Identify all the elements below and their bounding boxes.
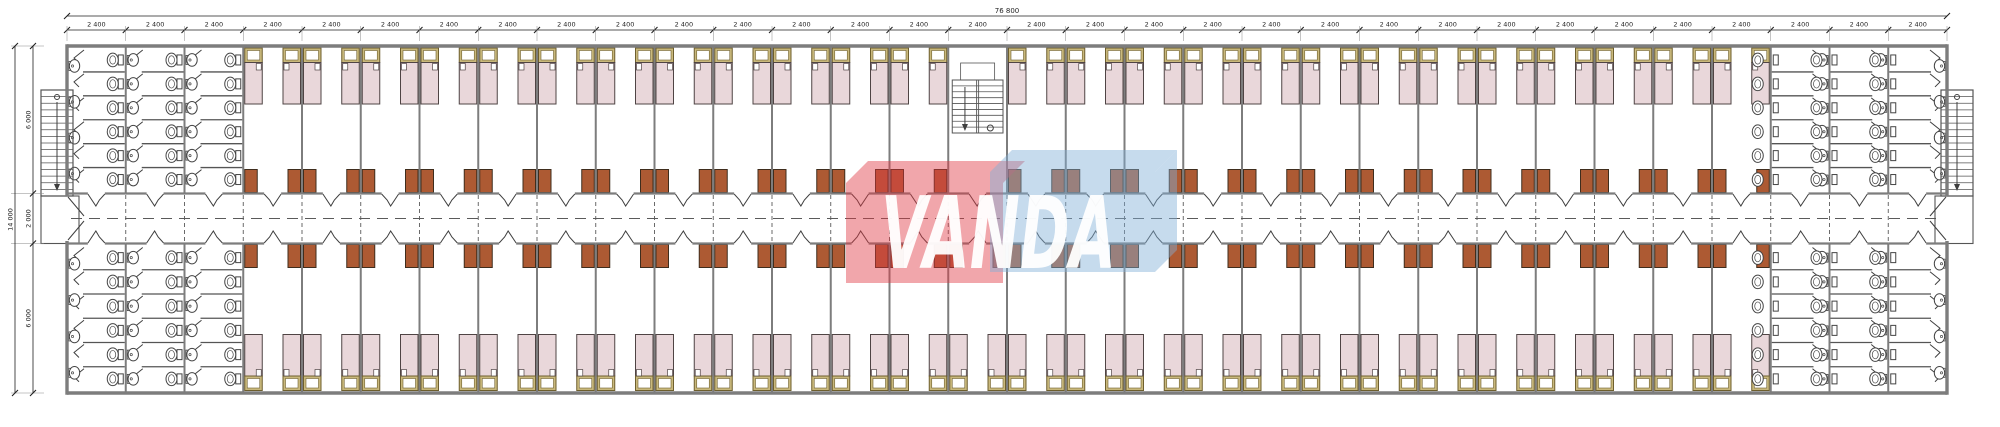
module-dim-label: 2 400 [1086,21,1105,29]
toilet-icon [166,372,182,386]
bed-icon [518,335,536,391]
bed-icon [362,335,380,391]
toilet-icon [166,348,182,362]
bed-icon [1479,335,1497,391]
module-dim-label: 2 400 [1438,21,1457,29]
toilet-icon [225,173,241,187]
module-dim-label: 2 400 [557,21,576,29]
bedroom-bottom-5 [304,231,360,391]
sink-icon [1934,330,1945,343]
door-swing [440,194,457,206]
locker-icon [758,245,771,268]
bed-icon [1009,48,1027,104]
door-swing [147,231,164,243]
sink-icon [186,54,197,67]
bed-icon [304,335,322,391]
module-dim-label: 2 400 [1908,21,1927,29]
toilet-icon [225,324,241,338]
sanitary-room-top-left [69,50,243,206]
locker-icon [1479,245,1492,268]
bed-icon [1185,48,1203,104]
bed-icon [1106,48,1124,104]
module-dim-label: 2 400 [851,21,870,29]
toilet-icon [166,53,182,67]
locker-icon [1185,245,1198,268]
module-dim-label: 2 400 [792,21,811,29]
bedroom-top-6 [362,48,418,206]
locker-icon [1302,170,1315,193]
sink-icon [186,300,197,313]
module-dim-label: 2 400 [1321,21,1340,29]
module-dim-label: 2 400 [440,21,459,29]
bed-icon [283,48,301,104]
toilet-icon [225,372,241,386]
locker-icon [817,170,830,193]
door-swing [617,194,634,206]
locker-icon [1244,245,1257,268]
bedroom-bottom-8 [480,231,536,391]
door-swing [264,194,281,206]
door-swing [499,194,516,206]
bed-icon [1361,48,1379,104]
bed-icon [283,335,301,391]
bed-icon [518,48,536,104]
sink-icon [69,60,80,73]
bed-icon [753,335,771,391]
bed-icon [459,48,477,104]
bed-icon [1126,48,1144,104]
locker-icon [1655,170,1668,193]
locker-icon [1420,245,1433,268]
module-dim-label: 2 400 [910,21,929,29]
sink-icon [186,276,197,289]
locker-icon [1228,170,1241,193]
bedroom-bottom-7 [421,231,477,391]
sink-icon [127,251,138,264]
bed-icon [1537,48,1555,104]
locker-icon [1522,245,1535,268]
bed-icon [421,335,439,391]
module-dim-label: 2 400 [1027,21,1046,29]
module-dim-label: 2 400 [205,21,224,29]
bed-icon [1223,335,1241,391]
toilet-icon [107,101,123,115]
sink-icon [1934,96,1945,109]
bed-icon [1341,335,1359,391]
locker-icon [656,170,669,193]
bedroom-bottom-25 [1479,231,1535,391]
locker-icon [641,245,654,268]
bedroom-top-11 [656,48,712,206]
toilet-icon [1752,275,1778,289]
bed-icon [1634,48,1652,104]
bed-icon [636,335,654,391]
sink-icon [186,125,197,138]
toilet-icon [225,275,241,289]
locker-icon [1420,170,1433,193]
door-swing [558,231,575,243]
sink-icon [127,276,138,289]
bed-icon [539,335,557,391]
locker-icon [1185,170,1198,193]
bed-icon [871,335,889,391]
bed-icon [1479,48,1497,104]
toilet-icon [166,251,182,265]
bed-icon [1302,335,1320,391]
locker-icon [464,245,477,268]
bed-icon [715,48,733,104]
module-dim-label: 2 400 [675,21,694,29]
locker-icon [1522,170,1535,193]
locker-icon [699,245,712,268]
locker-icon [421,245,434,268]
bed-icon [1047,48,1065,104]
sink-icon [1934,367,1945,380]
bed-icon [1047,335,1065,391]
sink-icon [69,367,80,380]
locker-icon [1596,170,1609,193]
locker-icon [817,245,830,268]
bedroom-bottom-13 [774,231,830,391]
sink-icon [127,125,138,138]
bedroom-top-25 [1479,48,1535,206]
door-swing [1263,194,1280,206]
locker-icon [1302,245,1315,268]
door-swing [1615,231,1632,243]
height-segment-label: 6 000 [25,309,33,328]
toilet-icon [166,173,182,187]
module-dim-label: 2 400 [1203,21,1222,29]
bed-icon [304,48,322,104]
locker-icon [1228,245,1241,268]
stall-door [74,272,84,285]
door-swing [1439,231,1456,243]
sink-icon [186,78,197,91]
bed-icon [401,48,419,104]
bed-icon [1458,335,1476,391]
bed-icon [362,48,380,104]
door-swing [675,194,692,206]
total-height-label: 14 000 [7,208,15,231]
locker-icon [539,245,552,268]
door-swing [1557,231,1574,243]
bed-icon [929,48,947,104]
bed-icon [1399,335,1417,391]
dimension-top-modules: 2 4002 4002 4002 4002 4002 4002 4002 400… [64,21,1950,42]
toilet-icon [225,53,241,67]
bed-icon [753,48,771,104]
bed-icon [539,48,557,104]
bed-icon [694,48,712,104]
bed-icon [774,335,792,391]
bedroom-top-23 [1361,48,1417,206]
sink-icon [69,131,80,144]
door-swing [1615,194,1632,206]
stall-door [1930,272,1940,285]
sink-icon [69,257,80,270]
bed-icon [950,335,968,391]
bed-icon [1009,335,1027,391]
door-swing [1263,231,1280,243]
toilet-icon [225,299,241,313]
module-dim-label: 2 400 [381,21,400,29]
bed-icon [988,335,1006,391]
toilet-icon [107,77,123,91]
sink-icon [127,149,138,162]
bed-icon [1420,48,1438,104]
locker-icon [1346,245,1359,268]
door-swing [499,231,516,243]
bed-icon [1596,335,1614,391]
bed-icon [342,335,360,391]
bed-icon [480,48,498,104]
locker-icon [245,245,258,268]
locker-icon [1287,170,1300,193]
door-swing [1850,194,1867,206]
door-swing [675,231,692,243]
sink-icon [1934,257,1945,270]
door-swing [382,231,399,243]
bed-icon [656,48,674,104]
bedroom-bottom-22 [1302,231,1358,391]
locker-icon [1698,170,1711,193]
locker-icon [1639,170,1652,193]
locker-icon [347,245,360,268]
module-dim-label: 2 400 [322,21,341,29]
bed-icon [1458,48,1476,104]
bedroom-bottom-27 [1596,231,1652,391]
door-swing [1674,194,1691,206]
locker-icon [480,245,493,268]
watermark: VANDA [846,150,1177,292]
bed-icon [812,48,830,104]
locker-icon [1361,170,1374,193]
door-swing [205,231,222,243]
dimension-top-total: 76 800 [64,7,1950,19]
module-dim-label: 2 400 [1380,21,1399,29]
module-dim-label: 2 400 [1615,21,1634,29]
toilet-icon [1752,149,1778,163]
sink-icon [186,348,197,361]
bedroom-bottom-24 [1420,231,1476,391]
bed-icon [245,48,263,104]
module-dim-label: 2 400 [1145,21,1164,29]
locker-icon [1287,245,1300,268]
bedroom-top-20 [1185,48,1241,206]
sink-icon [186,173,197,186]
bed-icon [1164,48,1182,104]
module-dim-label: 2 400 [1556,21,1575,29]
sink-icon [186,324,197,337]
bedroom-top-22 [1302,48,1358,206]
toilet-icon [107,324,123,338]
sink-icon [1934,294,1945,307]
bed-icon [832,48,850,104]
bed-icon [1634,335,1652,391]
door-swing [793,194,810,206]
sink-icon [127,348,138,361]
bedroom-bottom-11 [656,231,712,391]
toilet-icon [225,77,241,91]
bed-icon [636,48,654,104]
door-swing [1557,194,1574,206]
locker-icon [523,170,536,193]
door-swing [205,194,222,206]
stall-door [74,345,84,358]
locker-icon [1581,170,1594,193]
locker-icon [288,245,301,268]
module-dim-label: 2 400 [263,21,282,29]
locker-icon [1581,245,1594,268]
bed-icon [1223,48,1241,104]
module-dim-label: 2 400 [1262,21,1281,29]
bed-icon [1361,335,1379,391]
door-swing [558,194,575,206]
toilet-icon [166,275,182,289]
locker-icon [1244,170,1257,193]
door-swing [1792,231,1809,243]
bed-icon [1244,335,1262,391]
door-swing [440,231,457,243]
sink-icon [127,300,138,313]
bed-icon [459,335,477,391]
bed-icon [1244,48,1262,104]
door-swing [1204,194,1221,206]
toilet-icon [1752,125,1778,139]
sink-icon [127,173,138,186]
toilet-icon [107,125,123,139]
bed-icon [656,335,674,391]
bed-icon [832,335,850,391]
locker-icon [758,170,771,193]
bedroom-top-21 [1244,48,1300,206]
height-segment-label: 2 000 [25,209,33,228]
bed-icon [342,48,360,104]
bedroom-top-5 [304,48,360,206]
sink-icon [127,373,138,386]
locker-icon [539,170,552,193]
door-swing [1322,194,1339,206]
bed-icon [1576,48,1594,104]
toilet-icon [107,53,123,67]
toilet-icon [166,324,182,338]
locker-icon [1537,245,1550,268]
locker-icon [523,245,536,268]
toilet-icon [107,299,123,313]
toilet-icon [107,275,123,289]
bed-icon [597,48,615,104]
bed-icon [597,335,615,391]
locker-icon [406,170,419,193]
module-dim-label: 2 400 [1732,21,1751,29]
door-swing [1380,194,1397,206]
door-swing [1380,231,1397,243]
bed-icon [1282,335,1300,391]
locker-icon [656,245,669,268]
module-dim-label: 2 400 [87,21,106,29]
door-swing [1850,231,1867,243]
bed-icon [1517,48,1535,104]
toilet-icon [107,372,123,386]
sink-icon [186,251,197,264]
sanitary-room-bottom-right [1752,231,1945,386]
module-dim-label: 2 400 [616,21,635,29]
sink-icon [127,324,138,337]
door-swing [88,231,105,243]
locker-icon [362,170,375,193]
height-segment-label: 6 000 [25,110,33,129]
bed-icon [1164,335,1182,391]
bed-icon [480,335,498,391]
sink-icon [1934,131,1945,144]
bedroom-bottom-4 [245,231,301,391]
bedroom-top-13 [774,48,830,206]
bed-icon [1067,335,1085,391]
door-swing [382,194,399,206]
stall-door [74,146,84,159]
locker-icon [288,170,301,193]
bed-icon [421,48,439,104]
module-dim-label: 2 400 [1850,21,1869,29]
bedroom-top-10 [597,48,653,206]
locker-icon [582,170,595,193]
bedroom-bottom-21 [1244,231,1300,391]
bedroom-top-27 [1596,48,1652,206]
stall-door [1930,345,1940,358]
floor-plan-drawing: 2 4002 4002 4002 4002 4002 4002 4002 400… [0,0,2000,427]
locker-icon [774,170,787,193]
sink-icon [127,54,138,67]
sink-icon [127,101,138,114]
bed-icon [577,48,595,104]
locker-icon [245,170,258,193]
floor-plan-canvas: 2 4002 4002 4002 4002 4002 4002 4002 400… [0,0,2000,427]
toilet-icon [225,101,241,115]
locker-icon [1698,245,1711,268]
module-dim-label: 2 400 [968,21,987,29]
locker-icon [347,170,360,193]
bed-icon [812,335,830,391]
bedroom-bottom-9 [539,231,595,391]
door-swing [88,194,105,206]
door-swing [1204,231,1221,243]
door-swing [1733,231,1750,243]
locker-icon [832,245,845,268]
sink-icon [186,373,197,386]
door-swing [1674,231,1691,243]
module-dim-label: 2 400 [498,21,517,29]
door-swing [1439,194,1456,206]
bed-icon [1302,48,1320,104]
locker-icon [1714,245,1727,268]
toilet-icon [225,125,241,139]
bed-icon [577,335,595,391]
locker-icon [1404,245,1417,268]
door-swing [1792,194,1809,206]
bed-icon [1185,335,1203,391]
sanitary-room-bottom-left [69,231,243,386]
locker-icon [1463,170,1476,193]
locker-icon [1596,245,1609,268]
sink-icon [69,96,80,109]
watermark-text: VANDA [881,175,1116,292]
door-swing [734,231,751,243]
locker-icon [1537,170,1550,193]
toilet-icon [107,348,123,362]
module-dim-label: 2 400 [1673,21,1692,29]
locker-icon [832,170,845,193]
bedroom-bottom-10 [597,231,653,391]
